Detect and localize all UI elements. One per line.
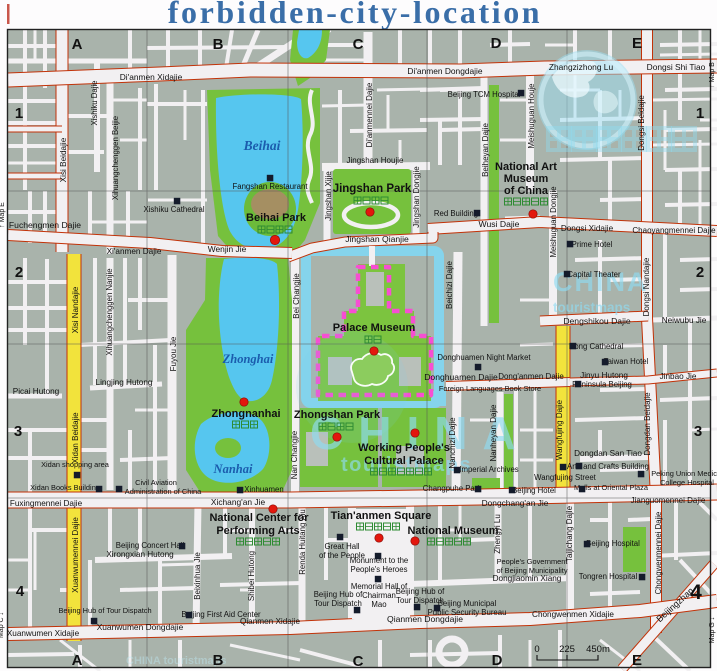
svg-text:Fuchengmen Dajie: Fuchengmen Dajie: [9, 220, 81, 230]
svg-text:Xishiku Dajie: Xishiku Dajie: [90, 80, 99, 125]
svg-text:Nan Changjie: Nan Changjie: [290, 430, 299, 479]
svg-text:Xuanwumennei Dajie: Xuanwumennei Dajie: [71, 517, 80, 593]
svg-text:4: 4: [16, 583, 25, 600]
svg-text:450m: 450m: [586, 644, 610, 655]
svg-text:Dongsi Beidajie: Dongsi Beidajie: [637, 95, 646, 151]
svg-text:3: 3: [14, 423, 22, 440]
svg-text:Dongsi Nandajie: Dongsi Nandajie: [642, 257, 651, 316]
svg-text:Great Hall: Great Hall: [324, 542, 359, 551]
svg-text:Mao: Mao: [371, 600, 387, 609]
svg-text:Dongjiaomin Xiang: Dongjiaomin Xiang: [493, 574, 562, 583]
svg-text:Wenjin Jie: Wenjin Jie: [208, 244, 247, 254]
svg-text:People's Government: People's Government: [497, 557, 568, 566]
svg-text:Fangshan Restaurant: Fangshan Restaurant: [233, 182, 309, 191]
svg-text:Bei Changjie: Bei Changjie: [292, 273, 301, 319]
svg-text:Wangfujing Dajie: Wangfujing Dajie: [555, 399, 564, 460]
svg-text:Lingjing Hutong: Lingjing Hutong: [96, 378, 153, 387]
svg-text:Imperial Archives: Imperial Archives: [459, 465, 518, 474]
svg-text:Fuyou Jie: Fuyou Jie: [169, 336, 178, 371]
svg-text:E: E: [632, 35, 642, 52]
svg-text:Beiheyan Dajie: Beiheyan Dajie: [481, 123, 490, 177]
svg-text:Wusi Dajie: Wusi Dajie: [479, 219, 520, 229]
svg-text:Meishuguan Dongjie: Meishuguan Dongjie: [549, 186, 558, 257]
svg-text:Jingshan Dongjie: Jingshan Dongjie: [412, 166, 421, 228]
svg-text:Tian'anmen Square: Tian'anmen Square: [331, 510, 432, 522]
svg-text:Picai Hutong: Picai Hutong: [13, 387, 60, 396]
svg-text:Tongren Hospital: Tongren Hospital: [579, 572, 638, 581]
svg-text:Beichizi Dajie: Beichizi Dajie: [445, 260, 454, 309]
svg-text:Jinbao Jie: Jinbao Jie: [660, 372, 697, 381]
svg-text:Donghuamen Dajie: Donghuamen Dajie: [424, 372, 498, 382]
svg-text:Dongsi Shi Tiao: Dongsi Shi Tiao: [647, 62, 706, 72]
svg-text:Xichang'an Jie: Xichang'an Jie: [211, 497, 266, 507]
svg-text:1: 1: [696, 105, 704, 122]
svg-text:National Museum: National Museum: [407, 525, 498, 537]
svg-text:Tour Dispatch: Tour Dispatch: [396, 596, 444, 605]
svg-text:Foreign Languages Book Store: Foreign Languages Book Store: [439, 384, 541, 393]
svg-text:Jianguomennei Dajie: Jianguomennei Dajie: [631, 496, 706, 505]
svg-text:Museum: Museum: [504, 173, 549, 185]
svg-text:Working People's: Working People's: [358, 442, 450, 454]
svg-text:Peking Union Medical: Peking Union Medical: [651, 469, 717, 478]
svg-text:Beijing Hub of: Beijing Hub of: [314, 590, 363, 599]
svg-text:3: 3: [694, 423, 702, 440]
svg-text:Nanhai: Nanhai: [213, 462, 253, 476]
svg-text:D: D: [491, 35, 502, 52]
svg-text:Nanheyan Dajie: Nanheyan Dajie: [489, 404, 498, 461]
svg-text:Performing Arts: Performing Arts: [216, 525, 299, 537]
svg-text:Red Building: Red Building: [434, 209, 478, 218]
svg-text:People's Heroes: People's Heroes: [351, 565, 408, 574]
svg-text:Palace Museum: Palace Museum: [333, 322, 416, 334]
svg-text:Civil Aviation: Civil Aviation: [135, 478, 177, 487]
svg-text:Capital Theater: Capital Theater: [567, 270, 621, 279]
svg-text:4: 4: [690, 581, 702, 604]
svg-text:Di'anmennei Dajie: Di'anmennei Dajie: [365, 82, 374, 147]
svg-text:Taijichang Dajie: Taijichang Dajie: [565, 505, 574, 562]
svg-text:Taiwan Hotel: Taiwan Hotel: [604, 357, 649, 366]
svg-text:Xishiku Cathedral: Xishiku Cathedral: [143, 205, 204, 214]
svg-text:Beijing Hotel: Beijing Hotel: [512, 486, 556, 495]
svg-text:Map C ↓: Map C ↓: [0, 612, 5, 638]
svg-text:1: 1: [15, 105, 23, 122]
svg-text:Fuxingmennei Dajie: Fuxingmennei Dajie: [10, 499, 83, 508]
svg-text:Tour Dispatch: Tour Dispatch: [314, 599, 362, 608]
svg-text:Wangfujing Street: Wangfujing Street: [534, 473, 597, 482]
svg-text:B: B: [213, 652, 224, 669]
svg-text:Beihai Park: Beihai Park: [246, 212, 307, 224]
svg-text:Dongdan Beidajie: Dongdan Beidajie: [643, 392, 652, 456]
svg-text:Cultural Palace: Cultural Palace: [364, 455, 443, 467]
svg-text:touristmaps: touristmaps: [553, 300, 630, 315]
svg-text:Xisi Nandajie: Xisi Nandajie: [71, 286, 80, 333]
svg-text:↑ Map B: ↑ Map B: [709, 62, 716, 88]
svg-text:Xisi Beidajie: Xisi Beidajie: [59, 137, 68, 182]
svg-text:Zhonghai: Zhonghai: [222, 352, 274, 366]
svg-text:CHINA touristmaps: CHINA touristmaps: [126, 655, 226, 667]
svg-text:Beihai: Beihai: [243, 138, 281, 153]
svg-text:C: C: [353, 36, 364, 53]
svg-text:Chongwenmen Xidajie: Chongwenmen Xidajie: [532, 610, 614, 619]
svg-text:Beijing Hub of Tour Dispatch: Beijing Hub of Tour Dispatch: [58, 606, 151, 615]
svg-text:Beijing Hospital: Beijing Hospital: [586, 539, 640, 548]
svg-text:Chairman: Chairman: [362, 591, 396, 600]
svg-text:Beijing Concert Hall: Beijing Concert Hall: [116, 541, 185, 550]
svg-text:Xirongxian Hutong: Xirongxian Hutong: [106, 550, 174, 559]
svg-text:Xuanwumen Xidajie: Xuanwumen Xidajie: [7, 629, 80, 638]
svg-text:Dong Cathedral: Dong Cathedral: [569, 342, 624, 351]
svg-text:Dengshikou Dajie: Dengshikou Dajie: [563, 316, 631, 326]
svg-text:College Hospital: College Hospital: [660, 478, 714, 487]
svg-text:Di'anmen Dongdajie: Di'anmen Dongdajie: [407, 66, 483, 76]
svg-text:Xihuangchenggen Nanjie: Xihuangchenggen Nanjie: [105, 268, 114, 355]
svg-text:Meishuguan Houje: Meishuguan Houje: [527, 83, 536, 148]
svg-text:Beijing TCM Hospital: Beijing TCM Hospital: [448, 90, 521, 99]
svg-text:Xi'anmen Dajie: Xi'anmen Dajie: [107, 247, 162, 256]
svg-text:0: 0: [534, 644, 539, 655]
svg-text:Xidan shopping area: Xidan shopping area: [41, 460, 110, 469]
svg-text:National Art: National Art: [495, 161, 557, 173]
svg-text:Chaoyangmennei Dajie: Chaoyangmennei Dajie: [632, 226, 716, 235]
svg-text:Xuanwumen Dongdajie: Xuanwumen Dongdajie: [97, 622, 184, 632]
svg-text:225: 225: [559, 644, 575, 655]
svg-text:Zhongshan Park: Zhongshan Park: [294, 409, 381, 421]
svg-text:National Center for: National Center for: [209, 512, 309, 524]
svg-text:Neiwubu Jie: Neiwubu Jie: [662, 316, 707, 325]
svg-text:Dong'anmen Dajie: Dong'anmen Dajie: [498, 372, 564, 381]
svg-text:Jinyu Hutong: Jinyu Hutong: [580, 371, 628, 380]
svg-text:Jingshan Qianjie: Jingshan Qianjie: [345, 234, 409, 244]
svg-text:Beijing Hub of: Beijing Hub of: [396, 587, 445, 596]
svg-text:Zhongnanhai: Zhongnanhai: [211, 408, 280, 420]
svg-text:Beijing First Aid Center: Beijing First Aid Center: [181, 610, 261, 619]
svg-text:A: A: [72, 36, 83, 53]
svg-text:2: 2: [15, 264, 23, 281]
svg-text:of Beijing Municipality: of Beijing Municipality: [496, 566, 567, 575]
svg-text:Jingshan Park: Jingshan Park: [333, 183, 412, 195]
svg-text:Jingshan Xijie: Jingshan Xijie: [324, 171, 333, 221]
svg-text:Zhangzizhong Lu: Zhangzizhong Lu: [549, 62, 614, 72]
svg-text:A: A: [72, 652, 83, 669]
svg-text:Map G ↓: Map G ↓: [709, 617, 716, 643]
svg-text:C: C: [353, 653, 364, 670]
svg-text:Shibei Hutong: Shibei Hutong: [247, 551, 256, 601]
svg-text:Donghuamen Night Market: Donghuamen Night Market: [437, 353, 531, 362]
svg-text:2: 2: [696, 264, 704, 281]
svg-text:Di'anmen Xidajie: Di'anmen Xidajie: [120, 72, 183, 82]
svg-text:Beijing Municipal: Beijing Municipal: [438, 599, 497, 608]
svg-text:Xidan Books Building: Xidan Books Building: [30, 483, 100, 492]
svg-text:Administration of China: Administration of China: [125, 487, 202, 496]
svg-text:Chongwenmennei Dajie: Chongwenmennei Dajie: [654, 512, 663, 595]
svg-text:Xihuangchenggen Beijie: Xihuangchenggen Beijie: [111, 116, 120, 200]
svg-text:Dongsi Xidajie: Dongsi Xidajie: [561, 224, 614, 233]
svg-text:Beixinhua Jie: Beixinhua Jie: [193, 552, 202, 600]
svg-text:of China: of China: [504, 185, 549, 197]
svg-text:Jingshan Houjie: Jingshan Houjie: [347, 156, 404, 165]
svg-text:D: D: [492, 652, 503, 669]
svg-text:E: E: [632, 652, 642, 669]
svg-text:Xidan Beidajie: Xidan Beidajie: [71, 412, 80, 464]
svg-text:Changpuhe Park: Changpuhe Park: [423, 484, 482, 493]
svg-text:Dongchang'an Jie: Dongchang'an Jie: [482, 498, 549, 508]
svg-text:↑ Map E: ↑ Map E: [0, 202, 6, 228]
svg-text:Prime Hotel: Prime Hotel: [572, 240, 613, 249]
svg-text:forbidden-city-location: forbidden-city-location: [168, 0, 542, 30]
svg-text:B: B: [213, 36, 224, 53]
svg-text:Xinhuamen: Xinhuamen: [244, 485, 283, 494]
svg-text:Dongdan San Tiao: Dongdan San Tiao: [574, 449, 642, 458]
